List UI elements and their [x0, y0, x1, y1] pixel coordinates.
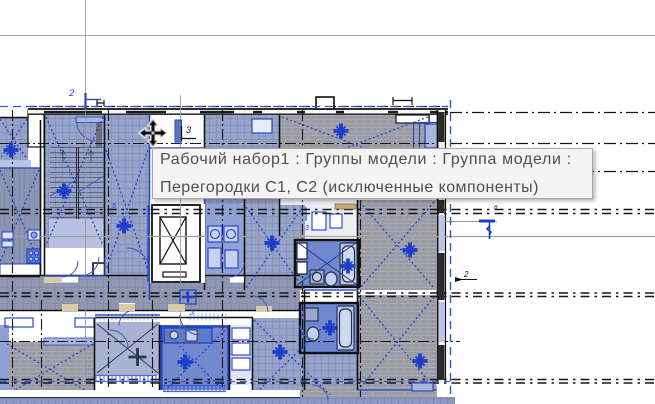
- svg-text:3: 3: [186, 125, 191, 135]
- svg-text:2: 2: [68, 88, 75, 99]
- svg-text:5: 5: [112, 203, 116, 210]
- svg-text:в: в: [494, 204, 498, 211]
- svg-text:3: 3: [305, 225, 309, 232]
- svg-text:3: 3: [190, 310, 194, 317]
- svg-text:2: 2: [463, 270, 469, 279]
